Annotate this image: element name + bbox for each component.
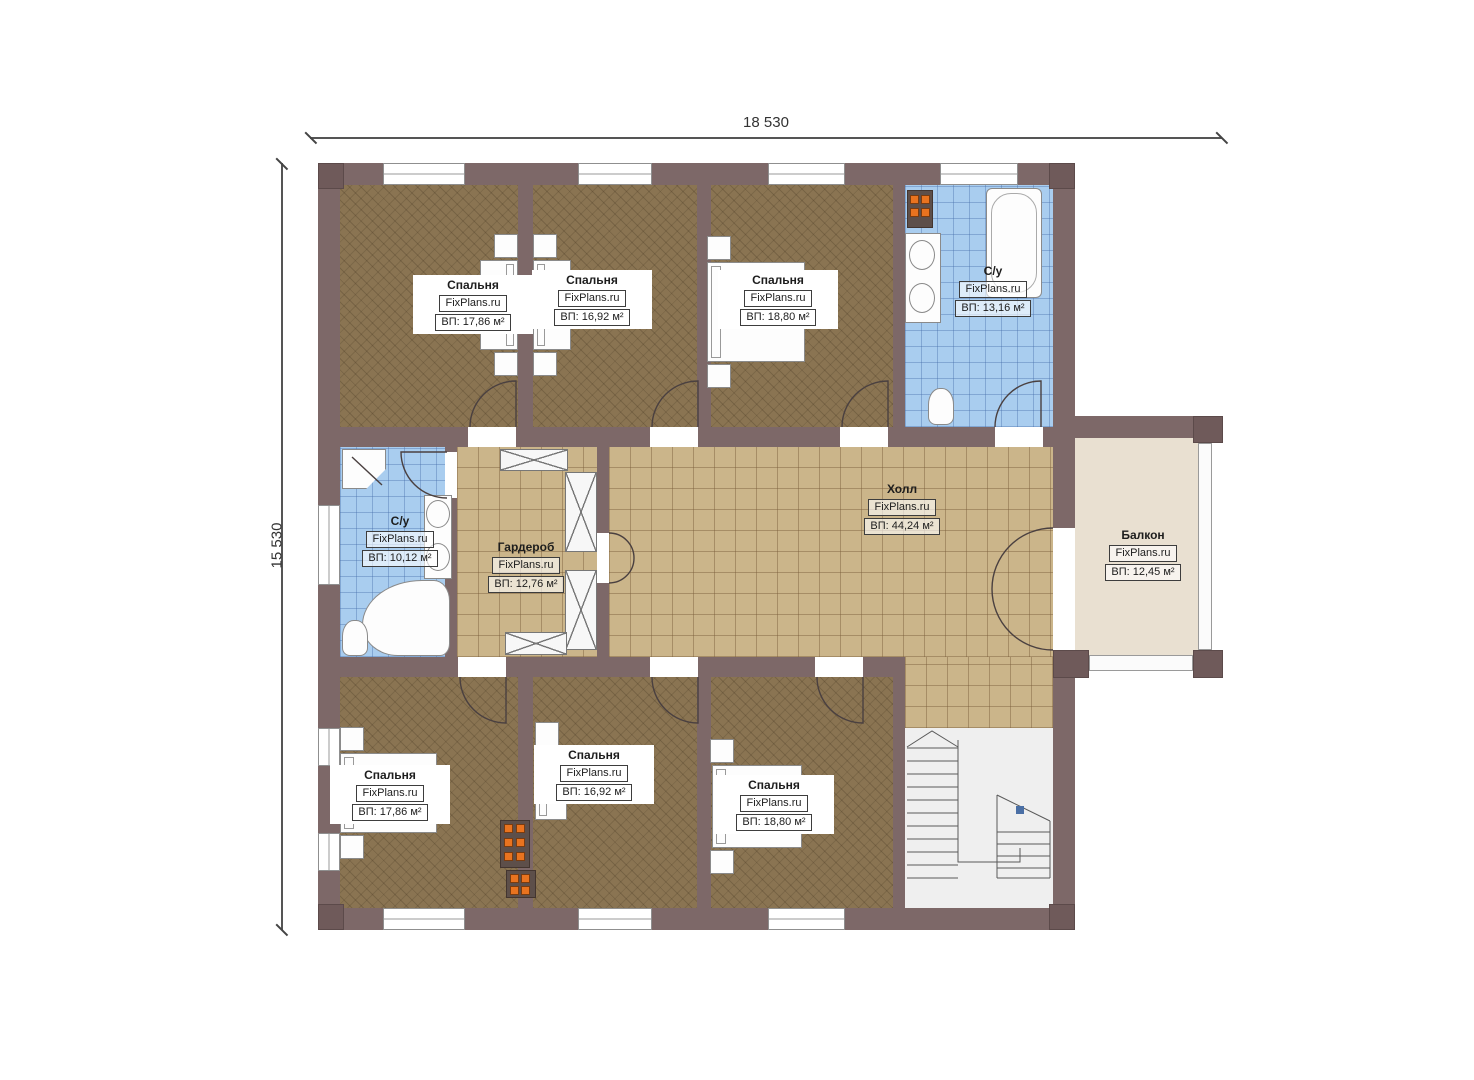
room-name: Спальня	[447, 278, 499, 293]
room-name: Спальня	[748, 778, 800, 793]
label-bathroom-top-right: С/у FixPlans.ru ВП: 13,16 м²	[939, 264, 1047, 317]
room-area: ВП: 13,16 м²	[955, 300, 1030, 317]
door-arc	[992, 528, 1053, 650]
room-area: ВП: 12,76 м²	[488, 576, 563, 593]
room-brand: FixPlans.ru	[744, 290, 811, 307]
door-arc	[609, 533, 634, 583]
room-brand: FixPlans.ru	[356, 785, 423, 802]
room-brand: FixPlans.ru	[959, 281, 1026, 298]
room-brand: FixPlans.ru	[1109, 545, 1176, 562]
room-brand: FixPlans.ru	[740, 795, 807, 812]
door-arc	[470, 381, 516, 427]
door-arc	[842, 381, 888, 427]
label-hall: Холл FixPlans.ru ВП: 44,24 м²	[848, 482, 956, 535]
room-name: Балкон	[1121, 528, 1164, 543]
door-arc	[652, 381, 698, 427]
room-name: Холл	[887, 482, 917, 497]
room-area: ВП: 18,80 м²	[740, 309, 815, 326]
stair-arrow	[907, 731, 958, 747]
room-name: С/у	[984, 264, 1003, 279]
room-name: С/у	[391, 514, 410, 529]
room-area: ВП: 44,24 м²	[864, 518, 939, 535]
room-area: ВП: 16,92 м²	[554, 309, 629, 326]
label-bedroom-top-right: Спальня FixPlans.ru ВП: 18,80 м²	[718, 270, 838, 329]
room-brand: FixPlans.ru	[492, 557, 559, 574]
room-area: ВП: 17,86 м²	[352, 804, 427, 821]
label-bathroom-middle-left: С/у FixPlans.ru ВП: 10,12 м²	[346, 514, 454, 567]
stair-marker	[1016, 806, 1024, 814]
room-area: ВП: 18,80 м²	[736, 814, 811, 831]
room-area: ВП: 16,92 м²	[556, 784, 631, 801]
dimension-height-label: 15 530	[269, 481, 286, 611]
room-brand: FixPlans.ru	[868, 499, 935, 516]
room-brand: FixPlans.ru	[366, 531, 433, 548]
label-wardrobe: Гардероб FixPlans.ru ВП: 12,76 м²	[472, 540, 580, 593]
label-balcony: Балкон FixPlans.ru ВП: 12,45 м²	[1089, 528, 1197, 581]
room-brand: FixPlans.ru	[439, 295, 506, 312]
room-area: ВП: 12,45 м²	[1105, 564, 1180, 581]
room-name: Спальня	[568, 748, 620, 763]
label-bedroom-top-left: Спальня FixPlans.ru ВП: 17,86 м²	[413, 275, 533, 334]
room-brand: FixPlans.ru	[560, 765, 627, 782]
floor-plan: Спальня FixPlans.ru ВП: 17,86 м² Спальня…	[0, 0, 1474, 1080]
door-arc	[460, 677, 506, 723]
shower-diagonal	[352, 457, 382, 485]
dimension-width-label: 18 530	[701, 114, 831, 131]
room-brand: FixPlans.ru	[558, 290, 625, 307]
room-area: ВП: 17,86 м²	[435, 314, 510, 331]
door-arc	[401, 452, 447, 498]
room-name: Спальня	[364, 768, 416, 783]
room-name: Спальня	[566, 273, 618, 288]
room-name: Спальня	[752, 273, 804, 288]
door-and-stair-linework	[0, 0, 1474, 1080]
room-area: ВП: 10,12 м²	[362, 550, 437, 567]
label-bedroom-bottom-right: Спальня FixPlans.ru ВП: 18,80 м²	[714, 775, 834, 834]
door-arc	[817, 677, 863, 723]
stair-treads-left	[907, 748, 958, 878]
door-arc	[652, 677, 698, 723]
label-bedroom-bottom-left: Спальня FixPlans.ru ВП: 17,86 м²	[330, 765, 450, 824]
dimension-line-top	[310, 137, 1222, 139]
label-bedroom-bottom-middle: Спальня FixPlans.ru ВП: 16,92 м²	[534, 745, 654, 804]
label-bedroom-top-middle: Спальня FixPlans.ru ВП: 16,92 м²	[532, 270, 652, 329]
room-name: Гардероб	[498, 540, 555, 555]
door-arc	[995, 381, 1041, 427]
